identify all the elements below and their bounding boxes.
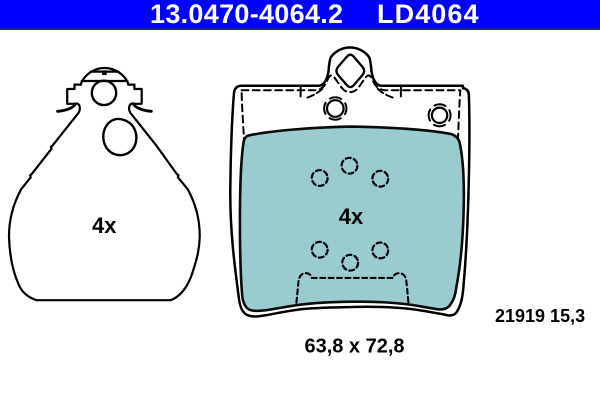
svg-text:4x: 4x xyxy=(339,204,364,229)
svg-text:4x: 4x xyxy=(92,213,117,238)
svg-text:21919 15,3: 21919 15,3 xyxy=(495,306,585,326)
svg-text:63,8 x 72,8: 63,8 x 72,8 xyxy=(304,336,404,358)
